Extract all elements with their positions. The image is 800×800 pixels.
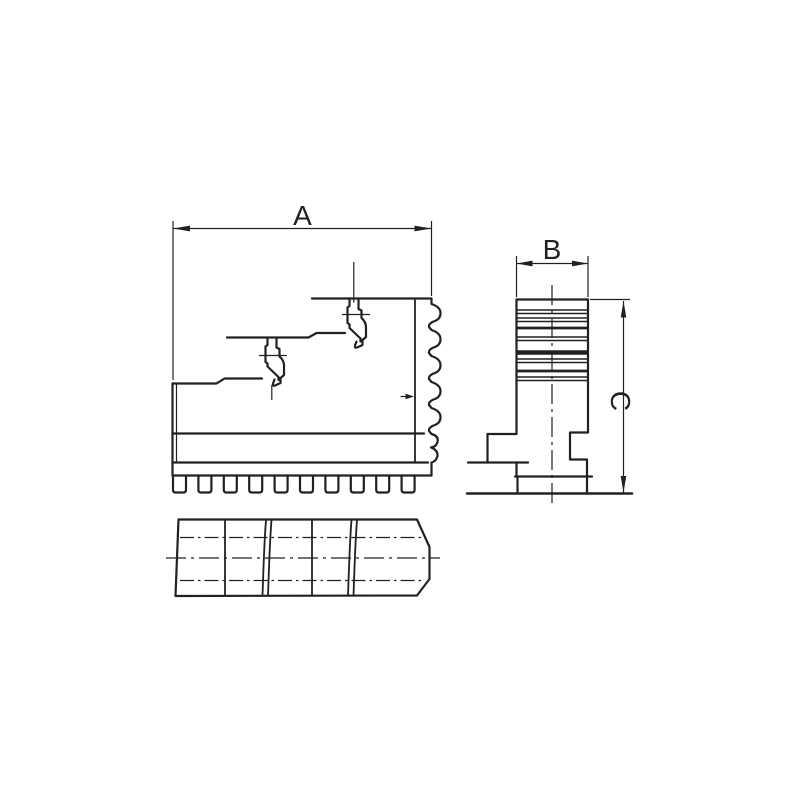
- upper-screw-detail: [342, 262, 370, 348]
- drawing-svg: A B: [0, 0, 800, 800]
- front-body-left: [488, 300, 517, 463]
- arrowhead-icon: [572, 261, 588, 267]
- lower-screw-detail: [259, 338, 287, 401]
- arrowhead-icon: [517, 261, 533, 267]
- technical-drawing: A B: [0, 0, 800, 800]
- lower-step-edge: [173, 379, 263, 384]
- dim-b-label: B: [543, 234, 562, 265]
- arrowhead-icon: [173, 226, 190, 232]
- arrowhead-icon: [621, 476, 627, 493]
- dim-a-label: A: [293, 200, 312, 231]
- arrowhead-icon: [415, 226, 432, 232]
- serrated-edge: [429, 299, 441, 476]
- arrowhead-icon: [621, 301, 627, 318]
- dimension-a: A: [173, 200, 432, 380]
- serration-pointer: [401, 394, 415, 399]
- bottom-view: [166, 520, 440, 597]
- rack-teeth: [173, 476, 415, 493]
- dimension-c: C: [590, 300, 636, 493]
- dim-c-label: C: [605, 391, 636, 411]
- arrowhead-icon: [406, 394, 415, 399]
- side-view: [173, 262, 441, 493]
- middle-step-edge: [227, 333, 345, 338]
